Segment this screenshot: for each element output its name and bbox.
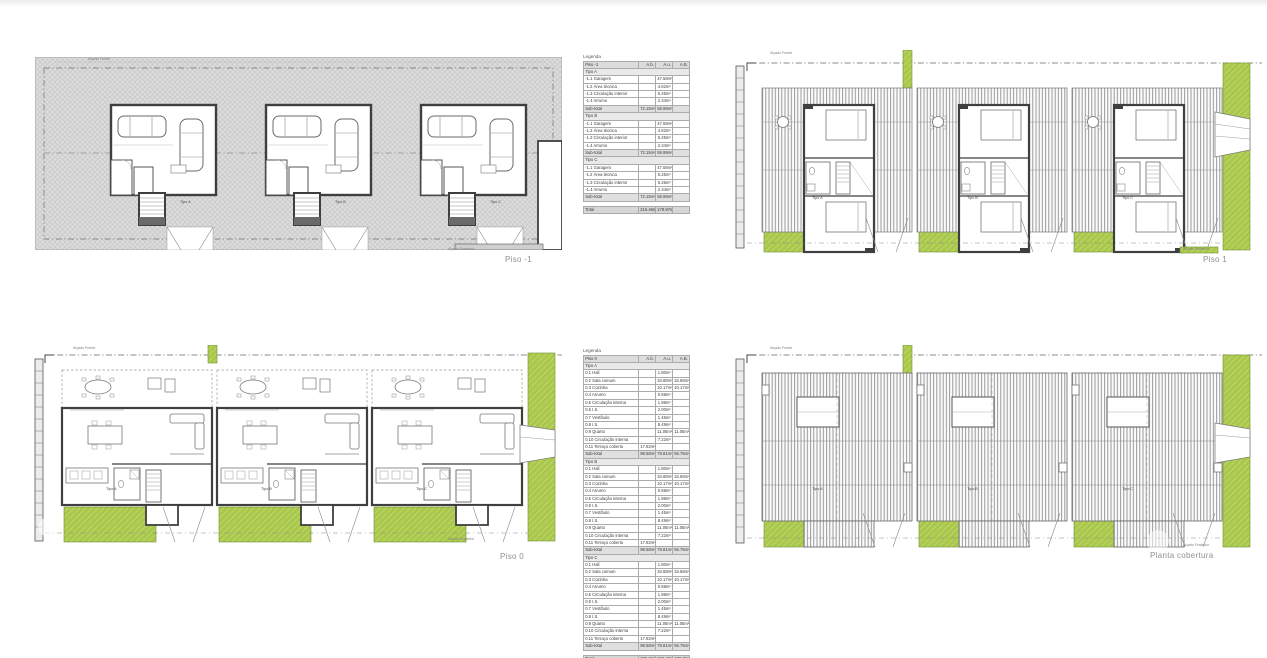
legend-cell: 1.98m² [656,591,673,598]
table-row: 0.9 Quarto11.06m²11.06m² [584,429,690,436]
unit-tipo-a [762,88,912,252]
legend-cell [639,495,656,502]
table-row: 0.10 Circulação interna7.22m² [584,628,690,635]
section-row: Tipo B [584,113,690,120]
legend-cell [673,392,690,399]
legend-cell [639,591,656,598]
legend-cell: 10.17m² [673,576,690,583]
legend-cell [673,164,690,171]
table-row: 0.8 I.S.8.49m² [584,421,690,428]
legend-cell: 2.00m² [656,407,673,414]
legend-cell: 0.1 Hall [584,370,639,377]
legend-cell [639,76,656,83]
table-row: -1.4 Arrumo2.34m² [584,98,690,105]
lawn [64,507,156,542]
roof-tipo-c [1072,373,1222,547]
legend-cell: 34.68m² [656,377,673,384]
legend-cell: 0.11 Terraço coberto [584,539,639,546]
front-annotation: Alçado Frente [88,57,110,61]
legend-cell: 0.9 Quarto [584,621,639,628]
legend-cell: 0.9 Quarto [584,525,639,532]
legend-cell: 59.99m² [656,105,673,112]
unit-label: Tipo C [416,487,427,491]
back-annotation: Alçado Posterior [1183,543,1209,547]
table-row: 0.7 Vestíbulo1.45m² [584,414,690,421]
piso-0-title: Piso 0 [500,552,524,561]
table-row: 0.5 Circulação interna1.98m² [584,591,690,598]
legend-cell: 34.68m² [673,377,690,384]
table-row: 0.3 Cozinha10.17m²10.17m² [584,480,690,487]
legend-cell: 5.25m² [656,135,673,142]
legend-cell [673,186,690,193]
legend-cell: 59.99m² [656,150,673,157]
legend-cell: 72.15m² [639,105,656,112]
legend-cell [639,628,656,635]
legend-cell [639,414,656,421]
legend-cell: 11.06m² [656,429,673,436]
legend-cell [639,172,656,179]
legend-cell [673,503,690,510]
unit-label: Tipo A [106,487,117,491]
legend-cell: -1.2 Área técnica [584,172,639,179]
legend-cell: 5.25m² [656,172,673,179]
section-row: Tipo C [584,554,690,561]
legend-cell: 79.81m² [656,451,673,458]
table-row: 0.4 Arrumo0.68m² [584,392,690,399]
table-row: -1.2 Área técnica5.25m² [584,172,690,179]
legend-cell: 5.25m² [656,91,673,98]
table-row: -1.4 Arrumo2.34m² [584,186,690,193]
legend-cell: 17.92m² [639,444,656,451]
legend-cell [673,584,690,591]
legend-cell [639,532,656,539]
legend-cell: 0.4 Arrumo [584,584,639,591]
legend-cell [673,399,690,406]
legend-cell [639,421,656,428]
legend-cell [639,120,656,127]
table-row: 0.7 Vestíbulo1.45m² [584,510,690,517]
legend-cell [639,370,656,377]
unit-tipo-b [217,370,367,525]
legend-cell [673,105,690,112]
table-row: 0.2 Sala comum34.68m²34.68m² [584,473,690,480]
table-row: 0.10 Circulação interna7.22m² [584,436,690,443]
legend-cell [673,120,690,127]
legend-title: Legenda [583,54,689,59]
legend-cell [639,466,656,473]
unit-tipo-b [917,88,1067,252]
table-row: Sub-total72.15m²59.99m² [584,105,690,112]
table-row: 0.1 Hall1.80m² [584,466,690,473]
legend-cell: 0.6 I.S. [584,407,639,414]
legend-cell [639,525,656,532]
legend-piso-m1: LegendaPiso -1A.b.A.u.A.B.Tipo A-1.1 Gar… [583,54,689,214]
legend-cell: 0.6 I.S. [584,598,639,605]
legend-cell: 11.06m² [656,621,673,628]
legend-cell: Tipo C [584,554,690,561]
unit-label: Tipo C [1122,196,1133,200]
legend-cell: -1.2 Área técnica [584,83,639,90]
legend-cell: 56.75m² [673,547,690,554]
table-row: 0.7 Vestíbulo1.45m² [584,606,690,613]
legend-cell [673,194,690,201]
legend-cell [656,635,673,642]
table-row: 0.6 I.S.2.00m² [584,503,690,510]
plan-piso-0 [33,345,562,545]
legend-cell: A.B. [673,61,690,68]
legend-cell: Sub-total [584,547,639,554]
legend-cell: Total [584,206,639,213]
legend-cell [673,539,690,546]
neighbor-cut [538,141,562,250]
legend-cell [673,370,690,377]
drawing-sheet: Piso -1 Piso 1 Piso 0 Planta cobertura A… [0,0,1267,658]
legend-cell: 0.4 Arrumo [584,392,639,399]
legend-cell: A.u. [656,355,673,362]
piso-1-title: Piso 1 [1203,255,1227,264]
legend-cell [673,495,690,502]
legend-cell: 8.49m² [656,517,673,524]
plan-piso-m1 [35,57,562,250]
legend-cell: 0.11 Terraço coberto [584,635,639,642]
legend-cell: 72.15m² [639,150,656,157]
table-row: 0.9 Quarto11.06m²11.06m² [584,621,690,628]
legend-cell: 10.17m² [656,576,673,583]
table-row: -1.3 Circulação interior5.25m² [584,91,690,98]
unit-label: Tipo B [967,487,978,491]
legend-cell: Sub-total [584,105,639,112]
legend-cell [639,584,656,591]
legend-cell [639,606,656,613]
legend-cell: 0.2 Sala comum [584,377,639,384]
legend-cell: 0.8 I.S. [584,517,639,524]
legend-cell [673,488,690,495]
legend-cell: Sub-total [584,194,639,201]
legend-cell [639,598,656,605]
legend-cell: 5.25m² [656,179,673,186]
legend-cell: A.b. [639,355,656,362]
hedge [903,50,912,88]
legend-cell: 0.3 Cozinha [584,480,639,487]
legend-cell: -1.1 Garagem [584,76,639,83]
party-wall-band [736,66,744,248]
legend-cell: 179.97m² [656,206,673,213]
legend-cell: Sub-total [584,451,639,458]
legend-cell: Tipo B [584,113,690,120]
legend-cell: 0.6 I.S. [584,503,639,510]
front-annotation: Alçado Frente [770,51,792,55]
legend-cell [639,392,656,399]
legend-cell: 72.15m² [639,194,656,201]
legend-cell [639,562,656,569]
legend-cell [639,127,656,134]
table-row: 0.5 Circulação interna1.98m² [584,495,690,502]
legend-cell: A.B. [673,355,690,362]
legend-cell [639,91,656,98]
legend-cell [639,576,656,583]
legend-cell [673,635,690,642]
section-row: Tipo A [584,68,690,75]
legend-cell: 10.17m² [656,385,673,392]
unit-label: Tipo C [490,200,501,204]
legend-cell [673,436,690,443]
table-row: 0.11 Terraço coberto17.92m² [584,539,690,546]
table-row: -1.3 Circulação interior5.25m² [584,179,690,186]
legend-cell [639,407,656,414]
legend-cell [673,150,690,157]
legend-cell: 47.58m² [656,164,673,171]
legend-cell [639,385,656,392]
table-row: Sub-total98.58m²79.81m²56.75m² [584,643,690,650]
legend-cell: 56.75m² [673,451,690,458]
legend-cell: 98.58m² [639,547,656,554]
legend-cell: 7.22m² [656,628,673,635]
legend-cell: 8.49m² [656,421,673,428]
legend-table: Piso 0A.b.A.u.A.B.Tipo A0.1 Hall1.80m²0.… [583,355,690,658]
plan-piso-1 [733,50,1262,255]
table-row: -1.1 Garagem47.58m² [584,120,690,127]
table-row: 0.4 Arrumo0.68m² [584,488,690,495]
table-row: -1.3 Circulação interior5.25m² [584,135,690,142]
legend-cell [639,436,656,443]
legend-cell [673,517,690,524]
legend-cell: 0.1 Hall [584,562,639,569]
legend-cell: 59.99m² [656,194,673,201]
legend-cell: 4.82m² [656,127,673,134]
legend-cell: 0.68m² [656,392,673,399]
legend-cell [639,503,656,510]
legend-cell [639,429,656,436]
legend-cell: 0.8 I.S. [584,613,639,620]
legend-cell: -1.1 Garagem [584,164,639,171]
legend-cell [673,444,690,451]
legend-cell: 47.58m² [656,76,673,83]
legend-cell [673,135,690,142]
unit-label: Tipo B [335,200,346,204]
legend-cell: 11.06m² [656,525,673,532]
side-deck [520,425,555,463]
legend-cell: 2.34m² [656,98,673,105]
legend-cell: Sub-total [584,150,639,157]
legend-cell: 0.5 Circulação interna [584,495,639,502]
back-annotation: Alçado Posterior [448,537,474,541]
legend-cell [673,83,690,90]
table-row: 0.6 I.S.2.00m² [584,598,690,605]
legend-cell: 1.80m² [656,562,673,569]
table-row: Sub-total72.15m²59.99m² [584,194,690,201]
legend-cell: 10.17m² [673,480,690,487]
table-row: 0.1 Hall1.80m² [584,562,690,569]
legend-cell: 0.1 Hall [584,466,639,473]
legend-cell: 0.10 Circulação interna [584,532,639,539]
table-row: -1.1 Garagem47.58m² [584,76,690,83]
legend-cell: 1.80m² [656,466,673,473]
legend-cell [639,135,656,142]
legend-cell: 2.00m² [656,598,673,605]
unit-label: Tipo A [812,196,823,200]
table-row: 0.3 Cozinha10.17m²10.17m² [584,576,690,583]
legend-cell: 0.68m² [656,488,673,495]
legend-cell: 1.98m² [656,399,673,406]
legend-table: Piso -1A.b.A.u.A.B.Tipo A-1.1 Garagem47.… [583,61,690,215]
legend-cell: 4.82m² [656,83,673,90]
legend-cell [639,179,656,186]
legend-cell: 0.3 Cozinha [584,576,639,583]
legend-cell: 34.68m² [656,569,673,576]
table-row: 0.4 Arrumo0.68m² [584,584,690,591]
legend-cell [639,164,656,171]
legend-cell: 1.98m² [656,495,673,502]
legend-cell [673,613,690,620]
legend-cell: -1.2 Área técnica [584,127,639,134]
table-row: 0.11 Terraço coberto17.92m² [584,444,690,451]
front-annotation: Alçado Frente [770,346,792,350]
front-annotation: Alçado Frente [73,346,95,350]
legend-cell: 1.45m² [656,414,673,421]
cobertura-title: Planta cobertura [1150,551,1214,560]
legend-cell: 0.5 Circulação interna [584,399,639,406]
legend-cell [673,466,690,473]
legend-cell: Tipo B [584,458,690,465]
table-row: 0.2 Sala comum34.68m²34.68m² [584,377,690,384]
legend-cell [639,517,656,524]
legend-cell: 0.8 I.S. [584,421,639,428]
party-wall-band [35,359,43,541]
legend-cell [639,569,656,576]
legend-cell: 0.3 Cozinha [584,385,639,392]
unit-label: Tipo C [1122,487,1133,491]
legend-cell: 1.45m² [656,606,673,613]
side-garden [1223,63,1250,250]
legend-cell: -1.3 Circulação interior [584,135,639,142]
legend-cell: 0.5 Circulação interna [584,591,639,598]
section-row: Tipo C [584,157,690,164]
legend-cell: 8.49m² [656,613,673,620]
legend-cell [656,539,673,546]
hedge [208,345,217,363]
legend-cell [673,421,690,428]
legend-cell [639,98,656,105]
legend-cell: Tipo A [584,68,690,75]
table-row: 0.9 Quarto11.06m²11.06m² [584,525,690,532]
legend-cell: A.b. [639,61,656,68]
table-row: -1.2 Área técnica4.82m² [584,83,690,90]
legend-cell [673,628,690,635]
table-row: -1.4 Arrumo2.34m² [584,142,690,149]
legend-cell: 0.10 Circulação interna [584,436,639,443]
legend-cell: 34.68m² [673,473,690,480]
legend-cell: 10.17m² [656,480,673,487]
cobertura-drawing [733,345,1262,550]
table-row: Sub-total98.58m²79.81m²56.75m² [584,451,690,458]
lawn [219,507,311,542]
party-wall-band [736,359,744,543]
legend-cell: 2.00m² [656,503,673,510]
legend-cell [673,142,690,149]
legend-piso-0: LegendaPiso 0A.b.A.u.A.B.Tipo A0.1 Hall1… [583,348,689,658]
legend-cell: 34.68m² [673,569,690,576]
legend-cell: 0.68m² [656,584,673,591]
legend-cell: 0.10 Circulação interna [584,628,639,635]
legend-cell: 11.06m² [673,525,690,532]
legend-cell [639,83,656,90]
unit-tipo-a [62,370,212,525]
back-annotation: Alçado Posterior [448,247,474,251]
legend-cell: 2.34m² [656,186,673,193]
unit-label: Tipo A [180,200,191,204]
legend-cell [673,98,690,105]
ramp-a [167,227,213,250]
legend-cell [656,444,673,451]
side-deck [1215,423,1250,463]
unit-label: Tipo B [261,487,272,491]
legend-cell [639,377,656,384]
table-row: 0.2 Sala comum34.68m²34.68m² [584,569,690,576]
unit-label: Tipo B [967,196,978,200]
watermark-circle [38,518,56,536]
legend-cell: 0.11 Terraço coberto [584,444,639,451]
table-row: 0.6 I.S.2.00m² [584,407,690,414]
legend-cell [673,91,690,98]
legend-cell: 0.2 Sala comum [584,473,639,480]
table-row: Piso -1A.b.A.u.A.B. [584,61,690,68]
legend-cell [639,473,656,480]
piso-1-drawing [733,50,1262,255]
section-row: Tipo A [584,362,690,369]
side-deck [1215,112,1250,157]
table-row: Sub-total72.15m²59.99m² [584,150,690,157]
legend-cell [673,127,690,134]
legend-cell [673,562,690,569]
piso-m1-title: Piso -1 [505,255,532,264]
legend-cell: Tipo A [584,362,690,369]
back-annotation: Alçado Posterior [1183,247,1209,251]
legend-cell: 56.75m² [673,643,690,650]
legend-cell: 17.92m² [639,539,656,546]
legend-cell [639,488,656,495]
legend-cell: 1.80m² [656,370,673,377]
table-row: Sub-total98.58m²79.81m²56.75m² [584,547,690,554]
table-row: 0.8 I.S.8.49m² [584,613,690,620]
legend-cell [673,532,690,539]
legend-cell [673,510,690,517]
legend-cell: Tipo C [584,157,690,164]
table-row: Piso 0A.b.A.u.A.B. [584,355,690,362]
legend-cell: Piso -1 [584,61,639,68]
legend-cell [673,179,690,186]
plan-cobertura [733,345,1262,550]
legend-cell: 98.58m² [639,451,656,458]
legend-cell: A.u. [656,61,673,68]
legend-cell: 98.58m² [639,643,656,650]
page-top-shadow [0,0,1267,7]
legend-cell: 2.34m² [656,142,673,149]
legend-cell [673,606,690,613]
legend-cell: -1.3 Circulação interior [584,91,639,98]
piso-0-drawing [33,345,562,545]
legend-cell [639,142,656,149]
table-row: 0.1 Hall1.80m² [584,370,690,377]
legend-cell [673,591,690,598]
legend-cell [673,76,690,83]
legend-cell: 17.92m² [639,635,656,642]
table-row: -1.2 Área técnica4.82m² [584,127,690,134]
unit-tipo-c [372,370,522,525]
legend-cell: -1.4 Arrumo [584,142,639,149]
legend-cell: 47.58m² [656,120,673,127]
legend-cell: 0.2 Sala comum [584,569,639,576]
section-row: Tipo B [584,458,690,465]
